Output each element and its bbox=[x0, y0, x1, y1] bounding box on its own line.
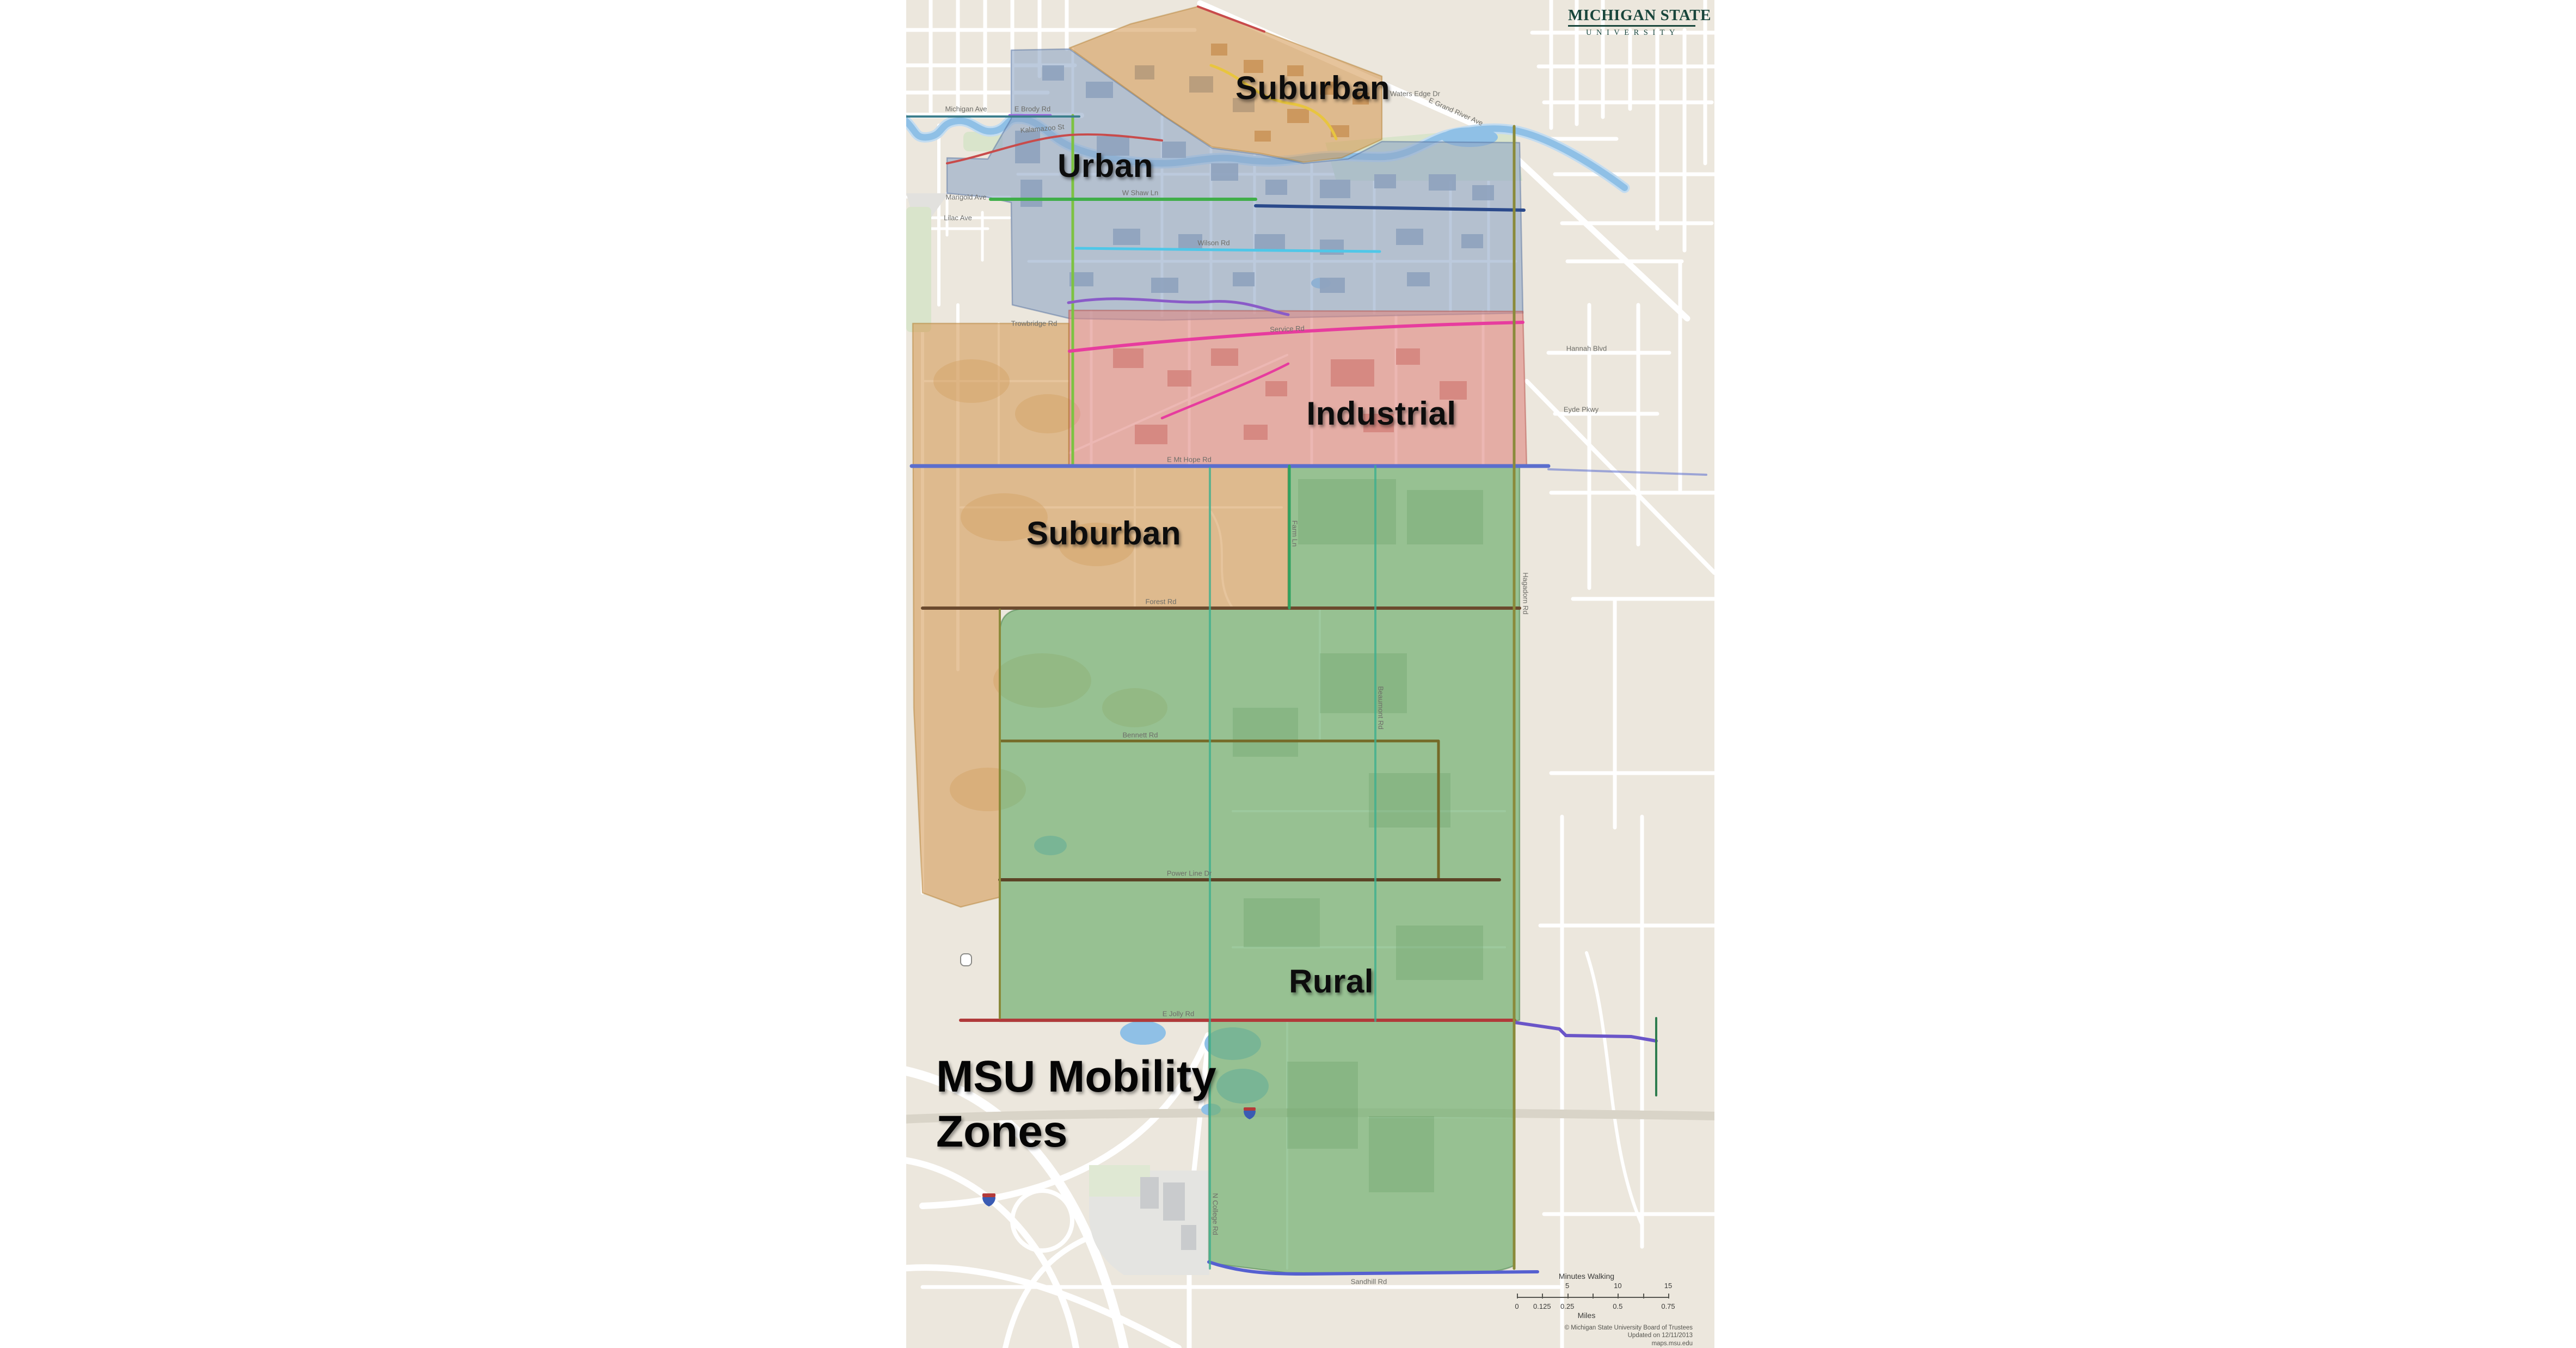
zone-industrial bbox=[1069, 310, 1527, 466]
scale-minutes-label: 10 bbox=[1614, 1282, 1621, 1290]
scale-tick bbox=[1542, 1294, 1543, 1298]
scale-legend-credits: © Michigan State University Board of Tru… bbox=[1494, 1324, 1693, 1347]
page: { "header": { "logo_line1": "MICHIGAN ST… bbox=[0, 0, 2576, 1348]
msu-logo-line2: UNIVERSITY bbox=[1570, 28, 1695, 38]
scale-tick bbox=[1643, 1294, 1644, 1298]
scale-minutes-label: 5 bbox=[1565, 1282, 1569, 1290]
scale-tick bbox=[1567, 1294, 1569, 1298]
campus-map: Michigan AveE Grand River AveWaters Edge… bbox=[906, 0, 1714, 1348]
credit-line: Updated on 12/11/2013 bbox=[1494, 1332, 1693, 1339]
scale-tick bbox=[1668, 1294, 1669, 1298]
zone-label-urban: Urban bbox=[1058, 147, 1153, 185]
zone-label-suburban-west: Suburban bbox=[1026, 514, 1181, 552]
scale-tick bbox=[1593, 1294, 1594, 1298]
scale-miles-label: 0 bbox=[1515, 1302, 1518, 1310]
scale-legend: Minutes Walking 5101500.1250.250.50.75 M… bbox=[1494, 1272, 1693, 1347]
scale-legend-minutes-title: Minutes Walking bbox=[1499, 1272, 1674, 1280]
scale-bar: 5101500.1250.250.50.75 bbox=[1499, 1280, 1674, 1313]
msu-logo-line1: MICHIGAN STATE bbox=[1568, 7, 1695, 27]
credit-line: © Michigan State University Board of Tru… bbox=[1494, 1324, 1693, 1332]
zone-label-industrial: Industrial bbox=[1306, 395, 1456, 432]
zone-label-rural: Rural bbox=[1289, 963, 1374, 1000]
scale-minutes-label: 15 bbox=[1664, 1282, 1672, 1290]
zone-label-suburban-north: Suburban bbox=[1235, 69, 1390, 107]
us-route-shield-icon bbox=[961, 954, 972, 966]
map-title: MSU Mobility Zones bbox=[936, 1050, 1263, 1160]
scale-miles-label: 0.75 bbox=[1661, 1302, 1675, 1310]
scale-miles-label: 0.25 bbox=[1560, 1302, 1574, 1310]
scale-tick bbox=[1618, 1294, 1619, 1298]
credit-line: maps.msu.edu bbox=[1494, 1340, 1693, 1347]
msu-logo: MICHIGAN STATE UNIVERSITY bbox=[1568, 7, 1695, 38]
scale-tick bbox=[1517, 1294, 1518, 1298]
scale-miles-label: 0.5 bbox=[1613, 1302, 1622, 1310]
scale-miles-label: 0.125 bbox=[1533, 1302, 1551, 1310]
